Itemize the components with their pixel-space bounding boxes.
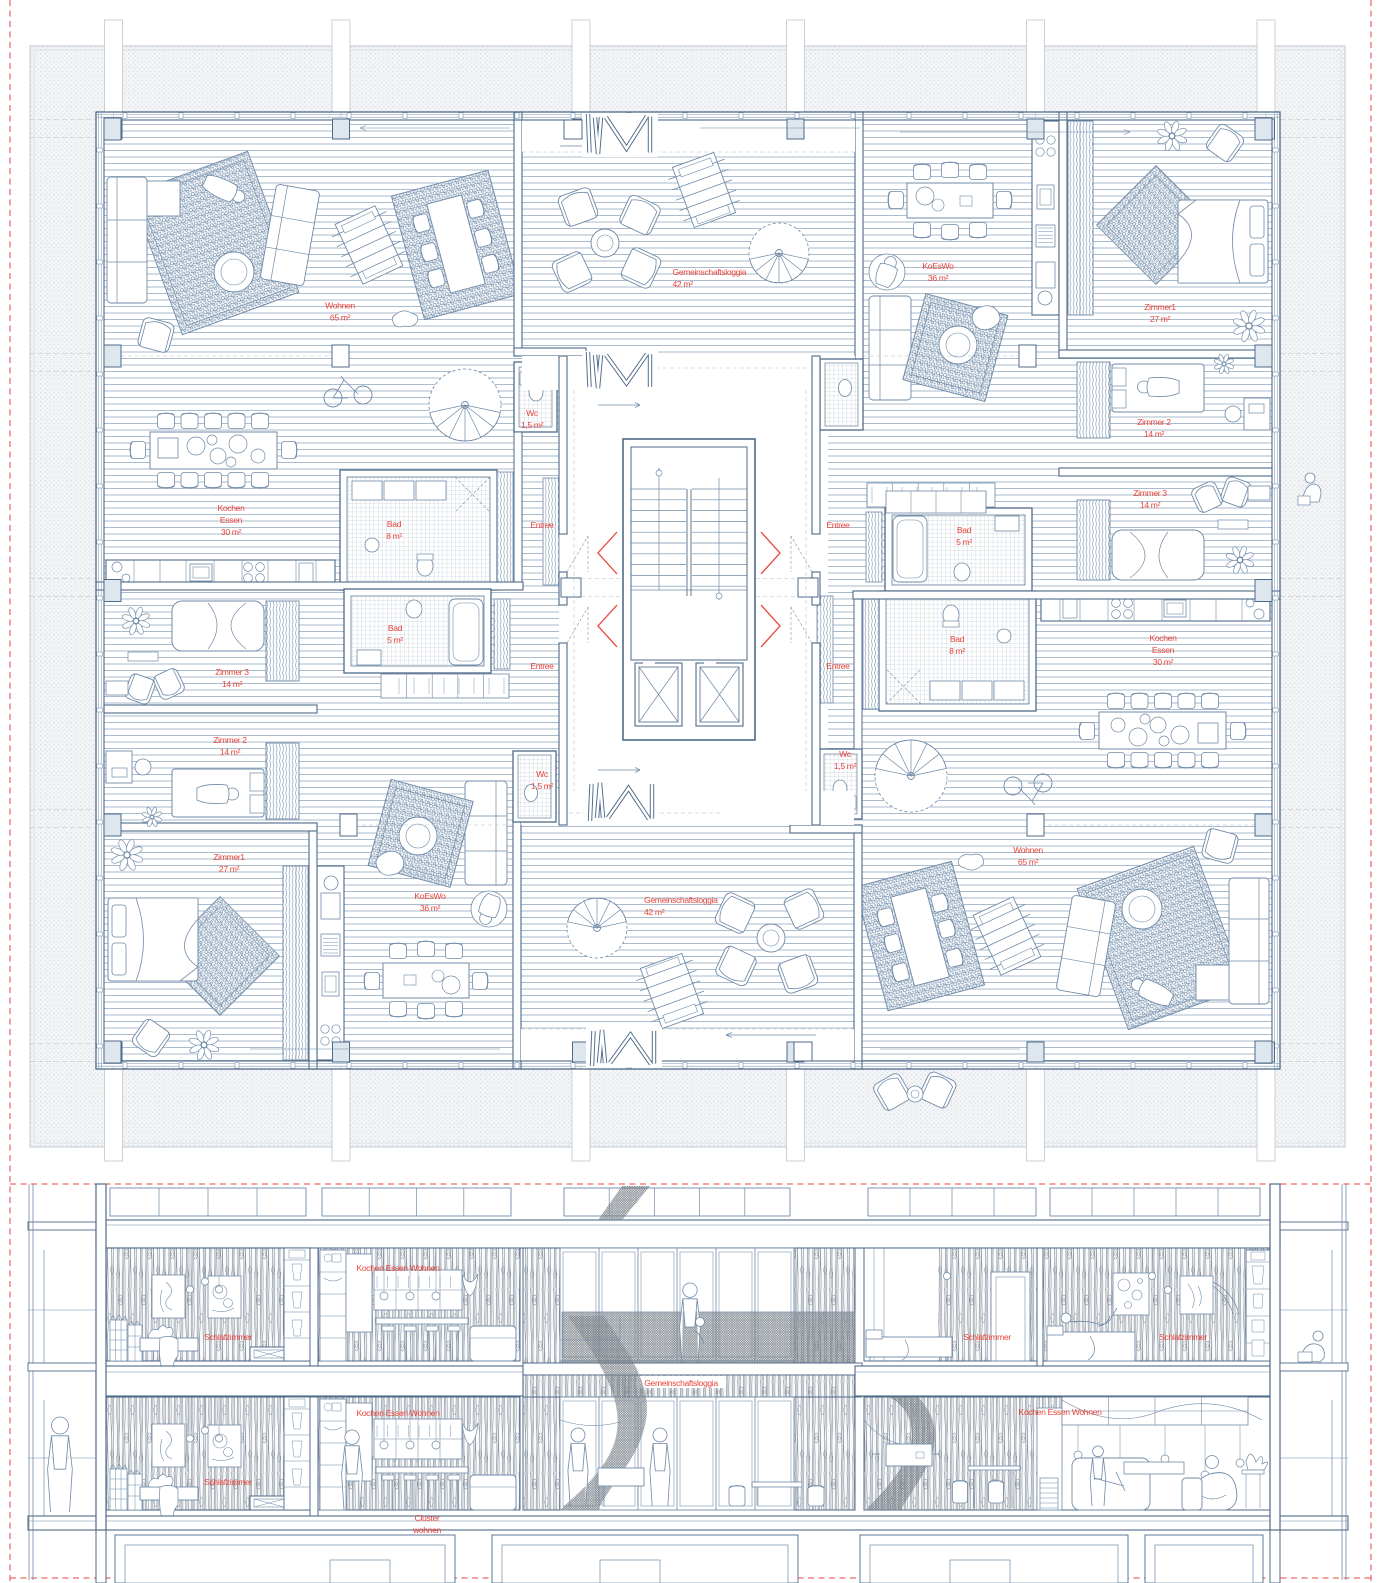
svg-text:Gemeinschaftsloggia: Gemeinschaftsloggia — [673, 267, 747, 277]
svg-text:wohnen: wohnen — [412, 1525, 442, 1535]
svg-text:1,5 m²: 1,5 m² — [834, 761, 857, 771]
svg-text:14 m²: 14 m² — [220, 747, 241, 757]
svg-text:KoEsWo: KoEsWo — [414, 891, 446, 901]
svg-text:Schlafzimmer: Schlafzimmer — [1159, 1332, 1207, 1342]
svg-text:Bad: Bad — [957, 525, 972, 535]
svg-text:1,5 m²: 1,5 m² — [521, 420, 544, 430]
svg-text:Schlafzimmer: Schlafzimmer — [204, 1477, 252, 1487]
svg-text:Kochen Essen Wohnen: Kochen Essen Wohnen — [356, 1263, 440, 1273]
svg-text:Gemeinschaftsloggia: Gemeinschaftsloggia — [644, 895, 718, 905]
svg-text:42 m²: 42 m² — [673, 279, 694, 289]
svg-text:30 m²: 30 m² — [1153, 657, 1174, 667]
svg-text:8 m²: 8 m² — [949, 646, 965, 656]
svg-text:65 m²: 65 m² — [330, 313, 351, 323]
svg-text:5 m²: 5 m² — [387, 635, 403, 645]
svg-text:14 m²: 14 m² — [1140, 500, 1161, 510]
svg-text:Entree: Entree — [826, 520, 850, 530]
svg-text:Schlafzimmer: Schlafzimmer — [204, 1332, 252, 1342]
svg-text:Zimmer1: Zimmer1 — [213, 852, 245, 862]
svg-text:42 m²: 42 m² — [644, 907, 665, 917]
svg-text:Essen: Essen — [220, 515, 243, 525]
svg-text:5 m²: 5 m² — [956, 537, 972, 547]
svg-text:KoEsWo: KoEsWo — [922, 261, 954, 271]
svg-text:Entree: Entree — [530, 661, 554, 671]
svg-text:Bad: Bad — [387, 519, 402, 529]
svg-text:Schlafzimmer: Schlafzimmer — [963, 1332, 1011, 1342]
svg-text:Zimmer1: Zimmer1 — [1144, 302, 1176, 312]
svg-text:1,5 m²: 1,5 m² — [531, 781, 554, 791]
svg-text:Wc: Wc — [839, 749, 852, 759]
svg-text:14 m²: 14 m² — [1144, 429, 1165, 439]
svg-text:Kochen Essen Wohnen: Kochen Essen Wohnen — [356, 1408, 440, 1418]
svg-text:Kochen: Kochen — [217, 503, 245, 513]
svg-text:27 m²: 27 m² — [219, 864, 240, 874]
svg-text:Wc: Wc — [526, 408, 539, 418]
svg-text:36 m²: 36 m² — [420, 903, 441, 913]
svg-text:Entree: Entree — [530, 520, 554, 530]
svg-text:Bad: Bad — [388, 623, 403, 633]
svg-text:Zimmer 3: Zimmer 3 — [215, 667, 249, 677]
svg-text:Kochen Essen Wohnen: Kochen Essen Wohnen — [1018, 1407, 1102, 1417]
svg-text:36 m²: 36 m² — [928, 273, 949, 283]
svg-text:Kochen: Kochen — [1149, 633, 1177, 643]
svg-text:27 m²: 27 m² — [1150, 314, 1171, 324]
svg-text:Bad: Bad — [950, 634, 965, 644]
svg-text:Gemeinschaftsloggia: Gemeinschaftsloggia — [644, 1378, 718, 1388]
svg-text:Zimmer 2: Zimmer 2 — [213, 735, 247, 745]
svg-text:30 m²: 30 m² — [221, 527, 242, 537]
svg-text:Wohnen: Wohnen — [325, 301, 355, 311]
svg-text:8 m²: 8 m² — [386, 531, 402, 541]
svg-text:Wohnen: Wohnen — [1013, 845, 1043, 855]
svg-text:Zimmer 2: Zimmer 2 — [1137, 417, 1171, 427]
svg-text:Wc: Wc — [536, 769, 549, 779]
svg-text:14 m²: 14 m² — [222, 679, 243, 689]
svg-text:Zimmer 3: Zimmer 3 — [1133, 488, 1167, 498]
svg-text:65 m²: 65 m² — [1018, 857, 1039, 867]
svg-text:Entree: Entree — [826, 661, 850, 671]
svg-text:Essen: Essen — [1152, 645, 1175, 655]
svg-text:Cluster: Cluster — [415, 1513, 440, 1523]
